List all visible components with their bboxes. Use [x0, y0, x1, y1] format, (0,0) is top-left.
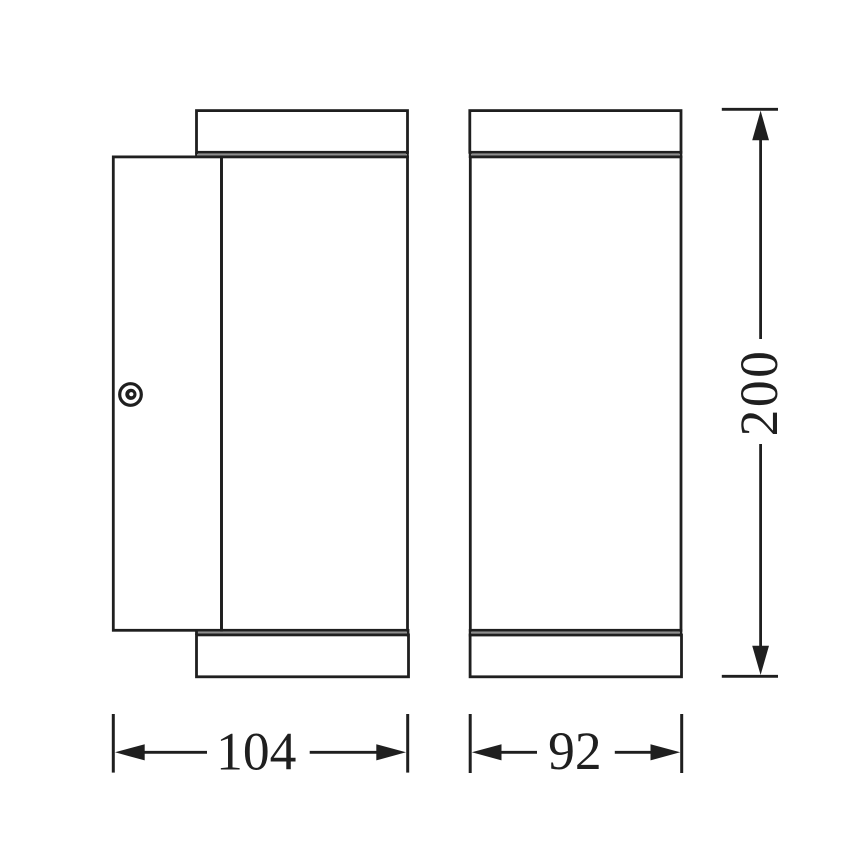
svg-text:92: 92: [548, 721, 602, 781]
svg-text:104: 104: [216, 722, 296, 782]
svg-text:200: 200: [729, 349, 789, 437]
